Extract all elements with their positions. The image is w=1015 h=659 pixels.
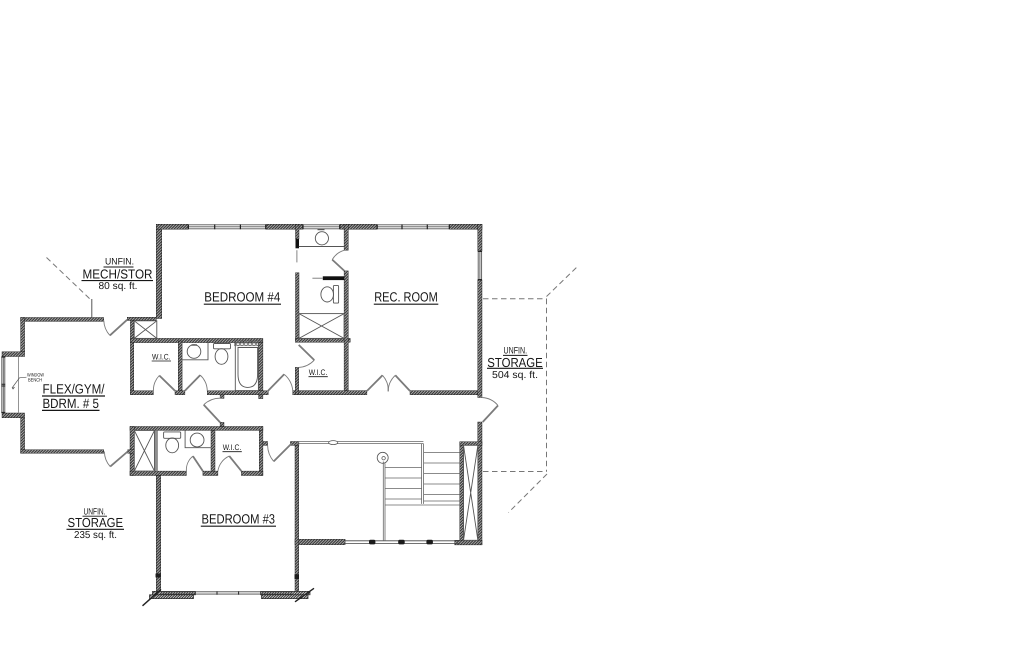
svg-text:W.I.C.: W.I.C. bbox=[309, 368, 328, 377]
svg-text:BEDROOM #4: BEDROOM #4 bbox=[204, 290, 280, 305]
svg-text:BENCH: BENCH bbox=[28, 378, 42, 384]
svg-text:80 sq. ft.: 80 sq. ft. bbox=[99, 281, 138, 292]
svg-text:REC. ROOM: REC. ROOM bbox=[374, 290, 438, 305]
svg-text:STORAGE: STORAGE bbox=[68, 515, 124, 530]
svg-text:235 sq. ft.: 235 sq. ft. bbox=[74, 530, 117, 541]
svg-text:W.I.C.: W.I.C. bbox=[152, 352, 171, 361]
svg-text:BEDROOM #3: BEDROOM #3 bbox=[202, 512, 276, 527]
svg-text:MECH/STOR: MECH/STOR bbox=[83, 267, 153, 282]
svg-text:504 sq. ft.: 504 sq. ft. bbox=[492, 370, 538, 381]
svg-text:FLEX/GYM/: FLEX/GYM/ bbox=[43, 382, 105, 397]
svg-text:W.I.C.: W.I.C. bbox=[223, 443, 242, 452]
svg-text:BDRM. # 5: BDRM. # 5 bbox=[42, 396, 99, 411]
